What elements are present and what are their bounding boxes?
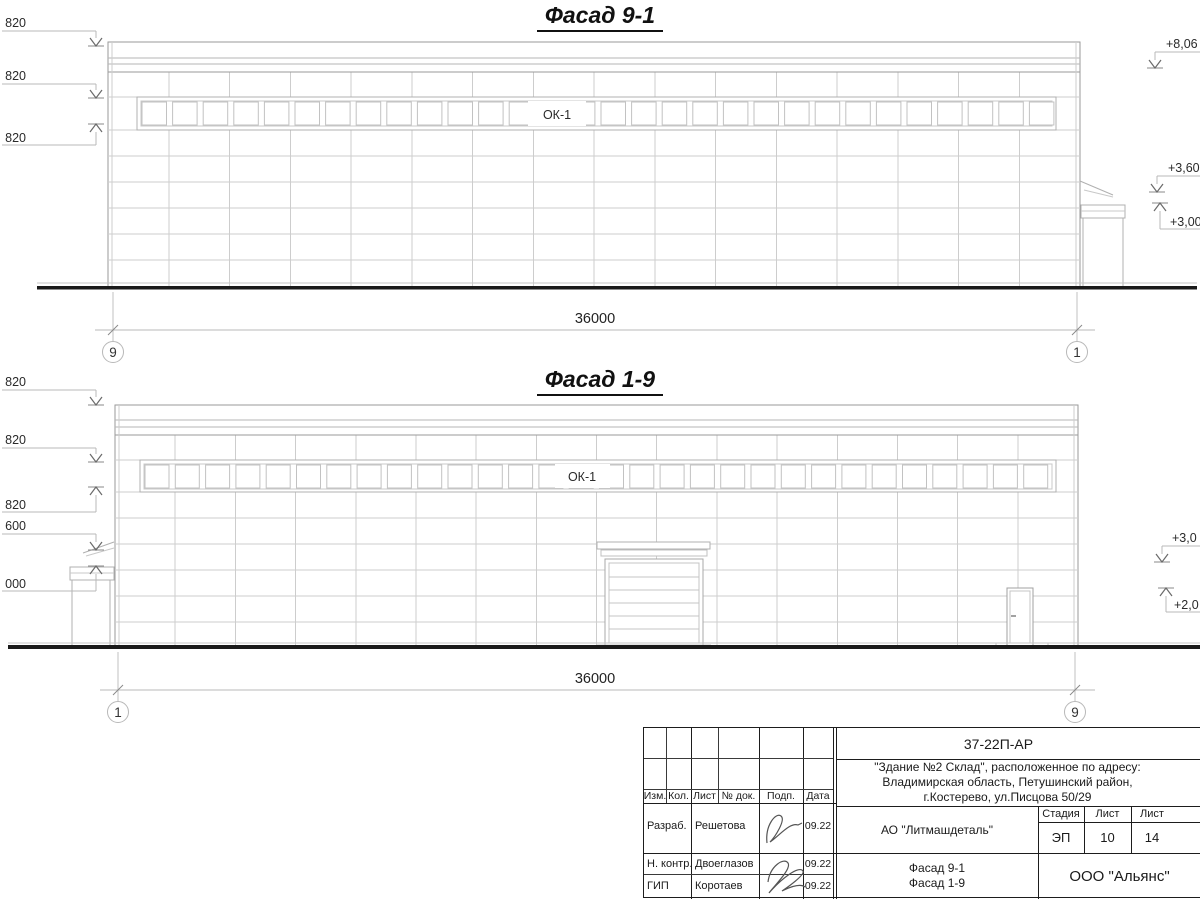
- porch-box: [72, 580, 110, 647]
- ground-line: [37, 286, 1197, 290]
- tb-col-doc: № док.: [718, 789, 759, 803]
- mark-arrow: [90, 454, 102, 462]
- mark-elevation-text: 820: [5, 16, 26, 30]
- window-pane: [448, 102, 473, 125]
- window-pane: [903, 465, 927, 488]
- window-pane: [1029, 102, 1054, 125]
- window-pane: [234, 102, 258, 125]
- tb-line: [644, 758, 833, 759]
- axis-label: 1: [1073, 345, 1081, 360]
- tb-sheet-title-line: Фасад 1-9: [909, 876, 965, 891]
- window-pane: [142, 102, 167, 125]
- tb-col-izm: Изм.: [644, 789, 666, 803]
- mark-arrow: [1154, 203, 1166, 211]
- mark-arrow: [90, 487, 102, 495]
- gate-canopy: [597, 542, 710, 549]
- tb-address-line: "Здание №2 Склад", расположенное по адре…: [874, 760, 1141, 775]
- window-pane: [478, 465, 502, 488]
- tb-line: [833, 728, 834, 899]
- mark-arrow: [1149, 60, 1161, 68]
- elevation-mark: 820: [2, 69, 104, 98]
- mark-elevation-text: +3,60: [1168, 161, 1200, 175]
- elevation-mark: +3,00: [1152, 203, 1200, 229]
- tb-date: 09.22: [803, 816, 833, 836]
- window-pane: [993, 465, 1017, 488]
- window-pane: [206, 465, 230, 488]
- window-pane: [872, 465, 896, 488]
- elevation-mark: +3,0: [1154, 531, 1200, 562]
- elevation-mark: 820: [2, 375, 104, 405]
- window-pane: [812, 465, 836, 488]
- tb-stage-value: ЭП: [1038, 822, 1084, 853]
- axis-label: 9: [109, 345, 117, 360]
- window-pane: [662, 102, 687, 125]
- elevation-mark: 600: [2, 519, 104, 550]
- gate-canopy-lower: [601, 550, 707, 556]
- mark-elevation-text: 820: [5, 433, 26, 447]
- window-pane: [781, 465, 805, 488]
- window-pane: [356, 102, 381, 125]
- tb-col-data: Дата: [803, 789, 833, 803]
- tb-name: Двоеглазов: [692, 855, 761, 873]
- title-block: Изм. Кол. Лист № док. Подп. Дата Разраб.…: [643, 727, 1200, 898]
- elevation-mark: 820: [2, 124, 104, 145]
- tb-stage-label: Стадия: [1038, 806, 1084, 822]
- elevation-mark: +3,60: [1149, 161, 1200, 192]
- tb-role: Разраб.: [644, 816, 694, 836]
- porch-box: [1083, 218, 1123, 287]
- axis-label: 1: [114, 705, 122, 720]
- tb-col-podp: Подп.: [759, 789, 803, 803]
- window-pane: [754, 102, 779, 125]
- dimension-value: 36000: [575, 311, 615, 327]
- window-pane: [509, 465, 533, 488]
- tb-sheets-value: 14: [1131, 822, 1200, 853]
- mark-elevation-text: +3,00: [1170, 215, 1200, 229]
- ground-line: [8, 645, 1200, 649]
- window-pane: [690, 465, 714, 488]
- window-pane: [933, 465, 957, 488]
- window-pane: [938, 102, 963, 125]
- window-pane: [203, 102, 228, 125]
- drawing-sheet: { "facades": { "top": { "title": "Фасад …: [0, 0, 1200, 900]
- window-pane: [630, 465, 654, 488]
- mark-elevation-text: 820: [5, 131, 26, 145]
- window-pane: [236, 465, 260, 488]
- elevation-mark: 820: [2, 433, 104, 462]
- window-pane: [876, 102, 901, 125]
- mark-elevation-text: 820: [5, 498, 26, 512]
- window-pane: [751, 465, 775, 488]
- window-pane: [693, 102, 718, 125]
- tb-organization: ООО "Альянс": [1038, 853, 1200, 899]
- tb-name: Решетова: [692, 816, 761, 836]
- elevation-mark: +2,0: [1158, 588, 1200, 612]
- tb-object-address: "Здание №2 Склад", расположенное по адре…: [836, 759, 1200, 806]
- facade-9-1-view: ОК-1 36000 9 1 820820820+8,06+3,60+3,00: [2, 16, 1200, 363]
- axis-label: 9: [1071, 705, 1079, 720]
- mark-elevation-text: 000: [5, 577, 26, 591]
- window-pane: [479, 102, 504, 125]
- elevation-mark: 820: [2, 16, 104, 46]
- window-pane: [448, 465, 472, 488]
- window-pane: [842, 465, 866, 488]
- window-pane: [327, 465, 351, 488]
- mark-arrow: [90, 124, 102, 132]
- window-pane: [175, 465, 199, 488]
- window-pane: [1024, 465, 1048, 488]
- window-pane: [660, 465, 684, 488]
- tb-line: [644, 874, 833, 875]
- mark-arrow: [1160, 588, 1172, 596]
- mark-arrow: [1151, 184, 1163, 192]
- tb-sheet-title: Фасад 9-1 Фасад 1-9: [836, 853, 1038, 899]
- tb-sheets-label: Лист: [1131, 806, 1200, 822]
- window-pane: [999, 102, 1024, 125]
- tb-sheet-title-line: Фасад 9-1: [909, 861, 965, 876]
- tb-name: Коротаев: [692, 877, 761, 895]
- window-pane: [326, 102, 351, 125]
- mark-elevation-text: +3,0: [1172, 531, 1197, 545]
- window-pane: [963, 465, 987, 488]
- mark-elevation-text: 600: [5, 519, 26, 533]
- tb-sheet-value: 10: [1084, 822, 1131, 853]
- window-pane: [968, 102, 993, 125]
- window-pane: [387, 102, 412, 125]
- window-pane: [145, 465, 169, 488]
- mark-arrow: [90, 90, 102, 98]
- tb-doc-number: 37-22П-АР: [836, 728, 1200, 759]
- mark-arrow: [90, 38, 102, 46]
- tb-sheet-label: Лист: [1084, 806, 1131, 822]
- tb-col-kol: Кол.: [666, 789, 691, 803]
- tb-date: 09.22: [803, 877, 833, 895]
- tb-col-list: Лист: [691, 789, 718, 803]
- window-band-label: ОК-1: [568, 470, 596, 484]
- window-pane: [815, 102, 840, 125]
- window-pane: [264, 102, 289, 125]
- window-pane: [387, 465, 411, 488]
- entry-door: [1007, 588, 1033, 646]
- window-pane: [417, 102, 442, 125]
- mark-arrow: [90, 397, 102, 405]
- window-pane: [357, 465, 381, 488]
- signature: [760, 854, 806, 898]
- window-pane: [295, 102, 320, 125]
- window-pane: [418, 465, 442, 488]
- window-pane: [632, 102, 657, 125]
- mark-arrow: [1156, 554, 1168, 562]
- window-pane: [297, 465, 321, 488]
- window-pane: [721, 465, 745, 488]
- mark-elevation-text: +2,0: [1174, 598, 1199, 612]
- window-pane: [785, 102, 810, 125]
- tb-address-line: г.Костерево, ул.Писцова 50/29: [924, 790, 1092, 805]
- tb-client: АО "Литмашдеталь": [836, 806, 1038, 853]
- window-band-label: ОК-1: [543, 108, 571, 122]
- elevation-mark: +8,06: [1147, 37, 1200, 68]
- window-pane: [907, 102, 932, 125]
- facade-1-9-view: ОК-1 36000 1 9 820820820600000+3,0+2,0: [2, 375, 1200, 723]
- tb-address-line: Владимирская область, Петушинский район,: [882, 775, 1132, 790]
- signature: [761, 807, 803, 851]
- window-pane: [173, 102, 198, 125]
- window-pane: [846, 102, 871, 125]
- elevation-mark: 820: [2, 487, 104, 512]
- tb-line: [644, 803, 836, 804]
- tb-date: 09.22: [803, 855, 833, 873]
- window-pane: [266, 465, 290, 488]
- window-pane: [723, 102, 748, 125]
- window-pane: [601, 102, 626, 125]
- mark-elevation-text: 820: [5, 69, 26, 83]
- dimension-value: 36000: [575, 671, 615, 687]
- tb-role: Н. контр.: [644, 855, 694, 873]
- mark-elevation-text: +8,06: [1166, 37, 1198, 51]
- mark-elevation-text: 820: [5, 375, 26, 389]
- tb-role: ГИП: [644, 877, 694, 895]
- canopy-slope-line: [86, 548, 114, 556]
